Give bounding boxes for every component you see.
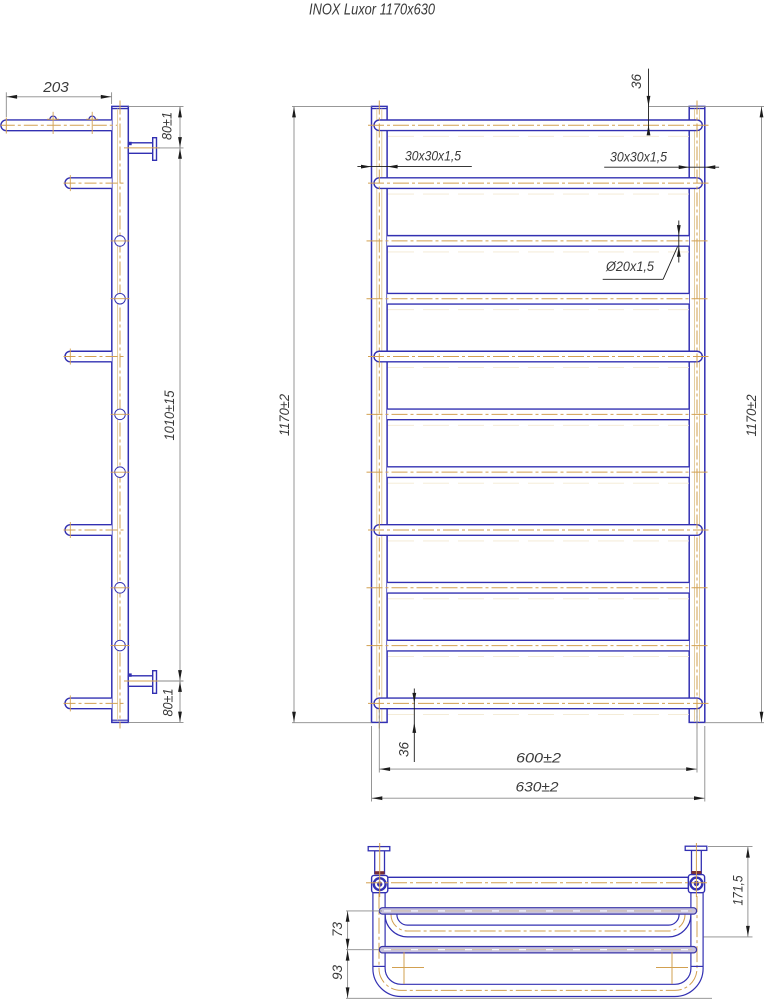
svg-text:30x30x1,5: 30x30x1,5: [405, 148, 461, 164]
svg-text:93: 93: [330, 965, 345, 980]
svg-text:36: 36: [629, 74, 644, 89]
svg-text:80±1: 80±1: [160, 112, 175, 140]
svg-text:1170±2: 1170±2: [277, 394, 292, 436]
svg-text:171,5: 171,5: [731, 875, 746, 905]
svg-text:1010±15: 1010±15: [161, 390, 177, 440]
svg-text:630±2: 630±2: [516, 779, 559, 795]
svg-text:Ø20x1,5: Ø20x1,5: [605, 259, 654, 274]
svg-text:36: 36: [397, 742, 412, 757]
svg-text:INOX Luxor 1170x630: INOX Luxor 1170x630: [309, 2, 435, 19]
svg-text:1170±2: 1170±2: [744, 394, 759, 436]
svg-text:203: 203: [42, 80, 69, 96]
svg-text:600±2: 600±2: [516, 750, 561, 766]
svg-text:80±1: 80±1: [161, 689, 176, 717]
svg-text:30x30x1,5: 30x30x1,5: [610, 149, 667, 165]
svg-text:73: 73: [330, 922, 345, 937]
